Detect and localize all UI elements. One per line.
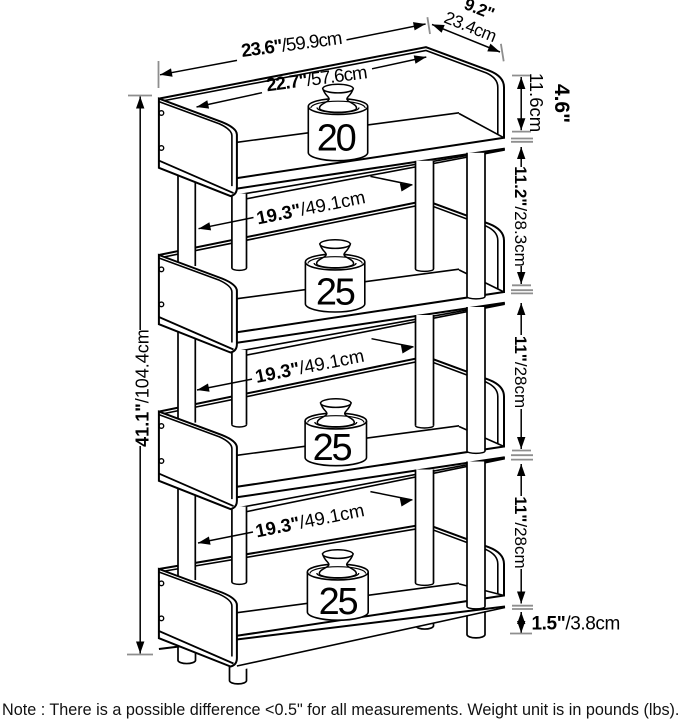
svg-text:20: 20 — [317, 118, 356, 160]
svg-text:11.2"/28.3cm: 11.2"/28.3cm — [511, 166, 530, 267]
svg-text:25: 25 — [313, 427, 352, 469]
svg-text:11"/28cm: 11"/28cm — [511, 336, 530, 408]
svg-text:Note : There is a possible dif: Note : There is a possible difference <0… — [2, 701, 679, 719]
svg-text:4.6": 4.6" — [550, 84, 573, 123]
svg-text:25: 25 — [316, 272, 355, 314]
svg-text:11.6cm: 11.6cm — [526, 73, 547, 132]
svg-text:25: 25 — [319, 581, 358, 623]
svg-text:1.5"/3.8cm: 1.5"/3.8cm — [532, 614, 620, 635]
svg-text:41.1"/104.4cm: 41.1"/104.4cm — [132, 329, 152, 447]
svg-text:11"/28cm: 11"/28cm — [511, 496, 530, 568]
